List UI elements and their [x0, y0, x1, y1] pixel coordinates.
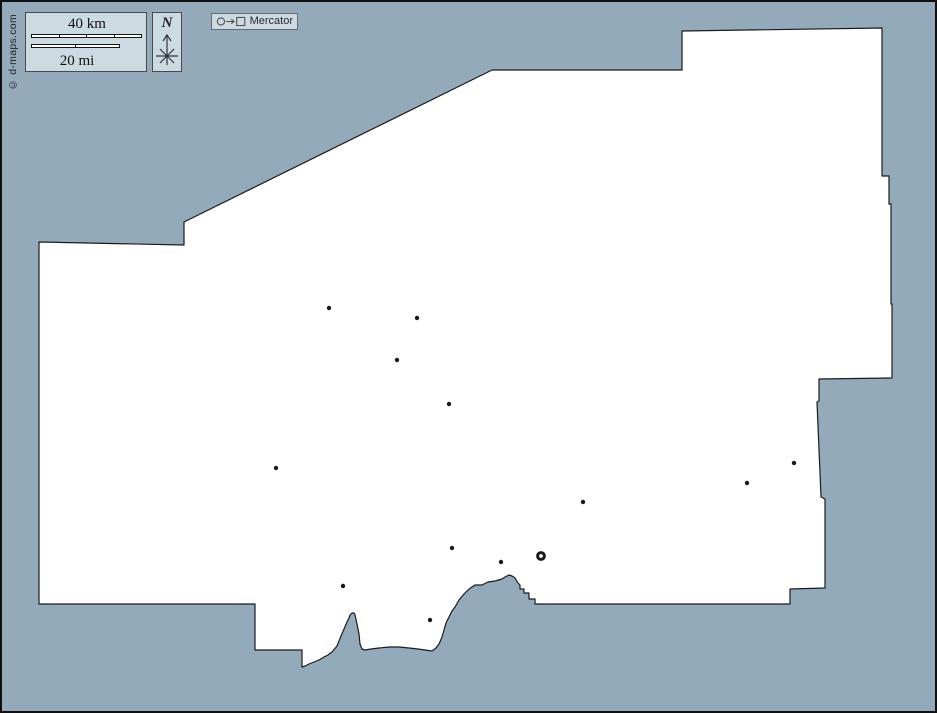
- projection-panel: Mercator: [211, 13, 298, 30]
- city-marker: [341, 584, 345, 588]
- city-marker: [415, 316, 419, 320]
- projection-label: Mercator: [250, 16, 293, 27]
- city-marker: [327, 306, 331, 310]
- scale-mi-label: 20 mi: [26, 54, 128, 69]
- mi-scale-bar: [31, 44, 120, 48]
- scale-segment: [32, 35, 59, 37]
- map-canvas: © d-maps.com 40 km 20 mi N: [0, 0, 937, 713]
- region-outline: [39, 28, 892, 667]
- compass-panel: N: [152, 12, 182, 72]
- city-marker: [274, 466, 278, 470]
- scale-panel: 40 km 20 mi: [25, 12, 147, 72]
- map-svg: [2, 2, 937, 713]
- north-arrow-icon: [153, 31, 181, 69]
- capital-ring-marker: [538, 553, 545, 560]
- km-scale-bar: [31, 34, 142, 38]
- copyright-label: © d-maps.com: [5, 9, 20, 95]
- scale-km-label: 40 km: [26, 17, 148, 32]
- city-marker: [792, 461, 796, 465]
- copyright-text: © d-maps.com: [7, 14, 19, 90]
- city-marker: [581, 500, 585, 504]
- city-marker: [428, 618, 432, 622]
- scale-segment: [114, 35, 142, 37]
- city-marker: [450, 546, 454, 550]
- city-marker: [395, 358, 399, 362]
- scale-segment: [59, 35, 87, 37]
- city-marker: [499, 560, 503, 564]
- scale-segment: [75, 45, 119, 47]
- scale-segment: [86, 35, 114, 37]
- city-marker: [745, 481, 749, 485]
- city-marker: [447, 402, 451, 406]
- projection-circle-to-square-icon: [216, 15, 247, 28]
- scale-segment: [32, 45, 75, 47]
- north-label: N: [153, 15, 181, 31]
